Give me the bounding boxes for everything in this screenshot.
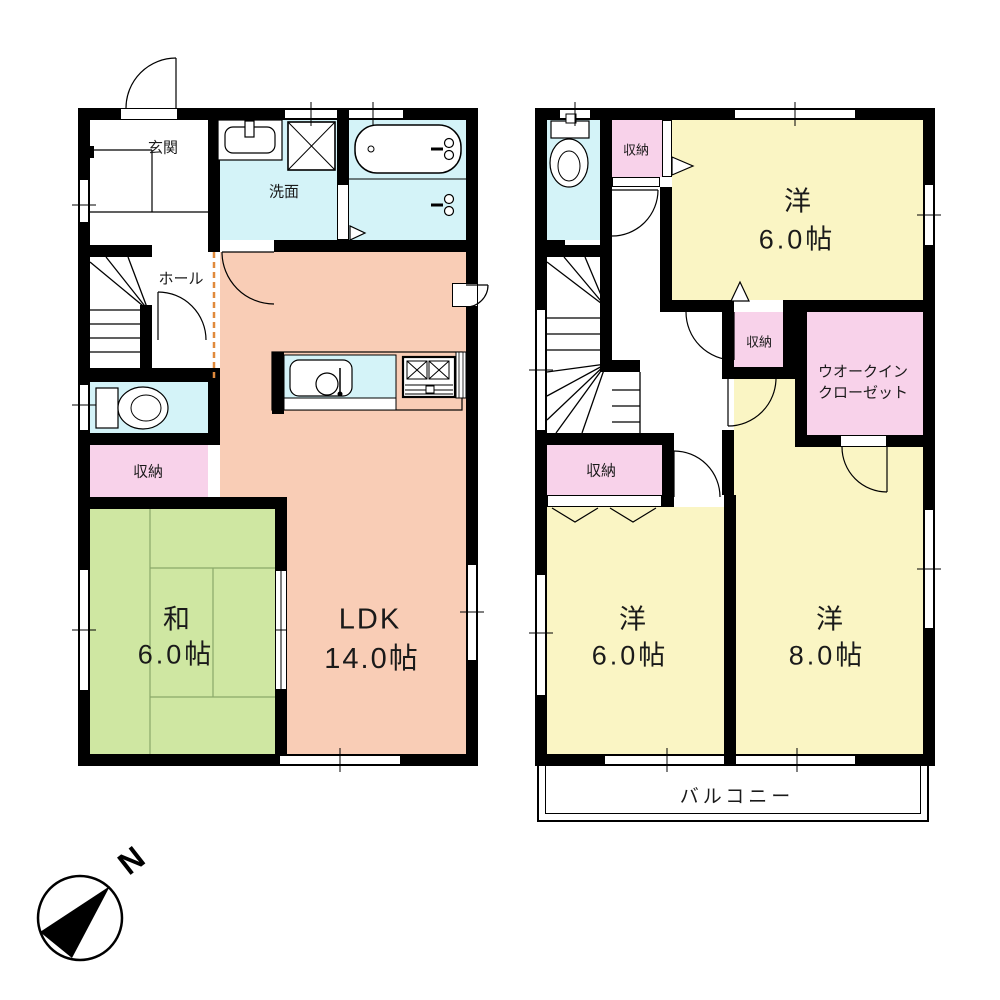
wall-hall-mid-lower xyxy=(722,430,734,495)
wall-washitsu-top xyxy=(78,497,287,509)
window-bedroom-top-right xyxy=(923,185,935,245)
storage-left-front xyxy=(547,495,662,507)
balcony-door-right xyxy=(736,754,855,766)
window-bedroom-left-side xyxy=(535,575,547,695)
window-washroom-top xyxy=(285,108,337,120)
wall-washroom-ldk xyxy=(274,240,466,252)
wall xyxy=(78,754,280,766)
wall-wic-left xyxy=(795,300,807,447)
label-wic-line2: クローゼット xyxy=(818,382,908,403)
wall-storage-mid-right xyxy=(783,300,795,379)
window-bedroom-right-side xyxy=(923,510,935,628)
label-storage-1f: 収納 xyxy=(133,461,163,482)
label-ldk-name: LDK xyxy=(339,604,401,637)
label-wic-line1: ウオークイン xyxy=(818,361,908,382)
compass-north-label: N xyxy=(111,839,151,882)
label-bedroom-left-name: 洋 xyxy=(619,598,649,637)
window-ldk-bottom xyxy=(280,754,400,766)
wall-washitsu-right-a xyxy=(275,497,287,570)
wall-kitchen-stub xyxy=(272,352,284,414)
wall-stairs-top-1f xyxy=(78,245,152,257)
room-bathroom xyxy=(349,120,466,240)
label-ldk-area: 14.0帖 xyxy=(324,635,419,677)
wall-storage-left-right xyxy=(662,433,674,507)
wall-genkan-stub xyxy=(78,146,94,158)
wall-stairs-stub-v-2f xyxy=(600,257,612,372)
wall-wic-bottom-a xyxy=(795,435,840,447)
label-bedroom-left-area: 6.0帖 xyxy=(592,634,669,673)
window-genkan-left xyxy=(78,180,90,222)
wall-toilet-top-1f xyxy=(78,368,220,382)
stairs-2f xyxy=(547,257,640,445)
wall-wic-bottom-b xyxy=(887,435,935,447)
floorplan-canvas: N 玄関 洗面 ホール 収納 和 6.0帖 LDK 14.0帖 収納 洋 6.0… xyxy=(0,0,1000,1000)
window-toilet-left xyxy=(78,385,90,430)
wall-stairs-stub-h-2f xyxy=(600,360,640,372)
window-ldk-right xyxy=(466,565,478,660)
bath-sliding-door xyxy=(337,184,349,240)
label-storage-2f-mid: 収納 xyxy=(746,332,772,351)
wall xyxy=(923,628,935,766)
wic-door-front xyxy=(840,435,887,447)
hall-cased-opening xyxy=(612,177,660,187)
wall-washroom-bath xyxy=(337,108,349,184)
label-washitsu-area: 6.0帖 xyxy=(138,633,215,672)
wall xyxy=(535,430,547,575)
wall xyxy=(466,660,478,766)
wall xyxy=(466,307,478,565)
wall-bedroom-top-bottom-a xyxy=(660,300,724,312)
window-toilet-2f-top xyxy=(560,108,590,120)
window-bedroom-top xyxy=(735,108,855,120)
room-ldk-upper xyxy=(220,252,466,497)
label-bedroom-top-name: 洋 xyxy=(784,180,814,219)
label-hall: ホール xyxy=(158,268,203,289)
room-toilet-2f xyxy=(547,120,600,240)
wall-stairs-top-2f xyxy=(535,245,612,257)
wall xyxy=(724,754,736,766)
wall-stairs-stub-1f xyxy=(140,305,152,370)
entrance-threshold xyxy=(120,108,178,120)
wall-toilet-bottom-1f xyxy=(78,433,220,445)
wall xyxy=(400,754,478,766)
wall xyxy=(923,108,935,185)
genkan-step-lines xyxy=(90,150,208,212)
wall-bedroom-divider xyxy=(724,495,736,754)
label-storage-2f-top: 収納 xyxy=(623,140,649,159)
label-bedroom-right-name: 洋 xyxy=(816,598,846,637)
label-balcony: バルコニー xyxy=(680,782,795,809)
wall-toilet-right-2f xyxy=(600,108,612,252)
label-bedroom-right-area: 8.0帖 xyxy=(789,634,866,673)
wall xyxy=(78,108,90,180)
wall xyxy=(855,754,935,766)
storage-2f-top-front xyxy=(662,120,672,177)
wall-hall-bedroom-top xyxy=(660,187,672,312)
wall-washitsu-right-b xyxy=(275,690,287,754)
label-storage-2f-left: 収納 xyxy=(586,460,616,481)
compass-icon: N xyxy=(38,839,151,960)
label-bedroom-top-area: 6.0帖 xyxy=(759,218,836,257)
label-washitsu-name: 和 xyxy=(163,598,193,637)
window-bath-top xyxy=(347,108,403,120)
room-toilet-1f xyxy=(90,382,208,433)
wall xyxy=(535,695,547,766)
wall-storage-left-top xyxy=(535,433,674,445)
wall xyxy=(923,245,935,510)
backdoor-threshold xyxy=(452,283,478,307)
label-genkan: 玄関 xyxy=(148,137,178,158)
wall xyxy=(178,108,285,120)
wall xyxy=(535,108,547,310)
balcony-door-left xyxy=(605,754,724,766)
label-washroom: 洗面 xyxy=(269,181,299,202)
wall-genkan-washroom xyxy=(208,108,220,252)
wall xyxy=(466,108,478,283)
window-stairs-left-2f xyxy=(535,310,547,430)
room-bedroom-right-upper xyxy=(734,378,795,447)
window-washitsu-left xyxy=(78,570,90,690)
washitsu-sliding-panels xyxy=(275,570,287,690)
